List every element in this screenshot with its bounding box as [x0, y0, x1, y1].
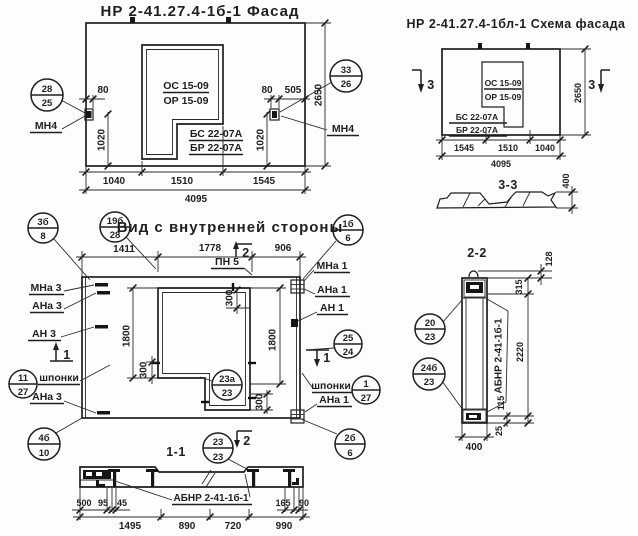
- anchor-label: МН4: [35, 120, 57, 132]
- dim-1545: 1545: [253, 176, 276, 187]
- section-2-2-mark-callout: АБНР 2-41-1б-1: [487, 299, 508, 412]
- dim-505: 505: [285, 85, 302, 96]
- inner-view-title: Вид с внутренней стороны: [117, 219, 344, 236]
- section-1-1-label: 1-1: [166, 445, 186, 459]
- section-2-2-label: 2-2: [467, 246, 487, 260]
- dim-2220: 2220: [515, 342, 525, 362]
- ana3-bottom-label: АНа 3: [32, 391, 62, 403]
- callout-bottom: 23: [222, 388, 233, 399]
- callout-bottom: 26: [341, 79, 352, 90]
- dim-115: 115: [496, 396, 506, 411]
- facade-anchor-label-left: МН4: [30, 116, 85, 133]
- dim-300-top-right: 300: [225, 289, 236, 306]
- section-1-1-mark: АБНР 2-41-1б-1: [115, 474, 252, 505]
- schema-dimensions: 2650 1545 1510 1040 4095: [436, 46, 591, 169]
- callout-bottom: 27: [361, 393, 372, 404]
- section-2-marker: 2: [243, 434, 250, 448]
- dim-1020-left: 1020: [97, 128, 108, 151]
- section-1-1-linework: [80, 467, 303, 487]
- section-1-1-callout: 23 23: [203, 433, 247, 469]
- dim-720: 720: [225, 521, 242, 532]
- facade-panel-mark: БС 22-07А: [190, 128, 243, 140]
- dim-990: 990: [276, 521, 293, 532]
- callout-top: 11: [18, 373, 29, 384]
- schema-view: НР 2-41.27.4-1бл-1 Схема фасада ОС 15-09…: [406, 17, 626, 169]
- section-3-marker: 3: [588, 78, 595, 92]
- inner-callout-2b6: 2б 6: [301, 419, 365, 459]
- dim-1411: 1411: [113, 244, 135, 255]
- dim-80-right: 80: [261, 85, 273, 96]
- section-2-2-linework: [462, 271, 487, 423]
- ana1-bottom-label: АНа 1: [319, 394, 349, 406]
- section-3-3-profile: [437, 192, 556, 208]
- callout-bottom: 25: [42, 98, 53, 109]
- shponki-left-label: шпонки: [39, 372, 79, 384]
- dim-2650-schema: 2650: [573, 83, 583, 103]
- mna3-label: МНа 3: [31, 282, 62, 294]
- callout-bottom: 23: [424, 377, 435, 388]
- facade-window-mark-2: ОР 15-09: [164, 95, 209, 107]
- dim-1020-right: 1020: [256, 128, 267, 151]
- an3-label: АН 3: [32, 328, 56, 340]
- schema-panel-mark: БС 22-07А: [456, 112, 498, 122]
- dim-1510: 1510: [171, 176, 194, 187]
- schema-section-marker-left: 3: [412, 70, 435, 93]
- facade-window-mark: ОС 15-09: [163, 80, 209, 92]
- inner-callout-23a23: 23а 23: [200, 370, 242, 400]
- dim-45: 45: [117, 498, 127, 508]
- callout-bottom: 28: [110, 230, 121, 241]
- pn5-label: ПН 5: [215, 256, 239, 268]
- section-3-3-dimension: 400: [556, 173, 578, 214]
- callout-bottom: 6: [347, 448, 352, 459]
- callout-top: 33: [341, 65, 352, 76]
- callout-top: 4б: [38, 433, 49, 444]
- ana1-top-label: АНа 1: [317, 284, 347, 296]
- section-1-marker: 1: [63, 348, 70, 362]
- dim-25: 25: [494, 426, 504, 436]
- dim-1040: 1040: [103, 176, 126, 187]
- dim-1495: 1495: [119, 521, 142, 532]
- section-2-2-callout-lower: 24б 23: [413, 358, 463, 410]
- dim-95: 95: [98, 498, 108, 508]
- dim-315: 315: [514, 279, 524, 294]
- section-3-3: 3-3 400: [437, 173, 578, 214]
- callout-top: 1: [363, 379, 369, 390]
- dim-165: 165: [275, 498, 290, 508]
- inner-callout-3b8: 3б 8: [28, 213, 90, 280]
- callout-bottom: 8: [40, 231, 45, 242]
- dim-80-left: 80: [97, 85, 109, 96]
- section-3-3-label: 3-3: [498, 178, 518, 192]
- inner-marker-1-left: 1: [50, 342, 73, 362]
- section-2-2-panel-mark: АБНР 2-41-1б-1: [493, 318, 505, 393]
- dim-1545-schema: 1545: [454, 143, 474, 153]
- section-3-marker: 3: [427, 78, 434, 92]
- callout-bottom: 27: [18, 387, 29, 398]
- drawing-sheet: НР 2-41.27.4-1б-1 Фасад ОС 15-09 ОР 15-0…: [0, 0, 638, 536]
- callout-top: 25: [343, 333, 354, 344]
- schema-section-marker-right: 3: [588, 70, 610, 93]
- inner-marker-1-right: 1: [306, 350, 331, 367]
- inner-view: Вид с внутренней стороны 3б 8 19б 28 1б …: [9, 212, 380, 460]
- callout-bottom: 23: [425, 332, 436, 343]
- dim-1800-left: 1800: [122, 324, 133, 347]
- callout-top: 23: [213, 437, 224, 448]
- callout-bottom: 6: [345, 233, 350, 244]
- schema-window-mark-2: ОР 15-09: [485, 92, 522, 102]
- dim-890: 890: [179, 521, 196, 532]
- callout-top: 28: [42, 84, 53, 95]
- schema-panel-mark-2: БР 22-07А: [456, 125, 498, 135]
- inner-callout-1127: 11 27: [9, 370, 37, 398]
- schema-title: НР 2-41.27.4-1бл-1 Схема фасада: [406, 17, 626, 31]
- facade-panel-mark-2: БР 22-07А: [190, 142, 242, 154]
- inner-top-dimensions: 1411 1778 906: [76, 243, 306, 277]
- mna1-label: МНа 1: [317, 260, 348, 272]
- callout-top: 3б: [37, 217, 48, 228]
- dim-500: 500: [76, 498, 91, 508]
- dim-4095-schema: 4095: [491, 159, 511, 169]
- dim-1510-schema: 1510: [498, 143, 518, 153]
- inner-callout-127: 1 27: [352, 376, 380, 404]
- shponki-right-label: шпонки: [311, 380, 351, 392]
- dim-906: 906: [275, 243, 292, 254]
- section-1-marker: 1: [323, 351, 330, 365]
- section-2-marker: 2: [242, 246, 249, 260]
- callout-bottom: 23: [213, 452, 224, 463]
- facade-dimensions: 80 80 505 1020 1020 2650 1040 1510 1545 …: [79, 20, 331, 205]
- anchor-label: МН4: [332, 123, 354, 135]
- inner-callout-4b10: 4б 10: [28, 418, 82, 460]
- panel-drawing-svg: НР 2-41.27.4-1б-1 Фасад ОС 15-09 ОР 15-0…: [0, 0, 638, 536]
- facade-anchor-label-right: МН4: [281, 116, 359, 136]
- callout-top: 2б: [344, 433, 355, 444]
- dim-300-bottom-right: 300: [255, 393, 266, 410]
- callout-top: 24б: [421, 363, 438, 374]
- facade-opening-marks: ОС 15-09 ОР 15-09 БС 22-07А БР 22-07А: [163, 80, 243, 155]
- dim-400-thickness: 400: [561, 173, 571, 188]
- dim-4095-facade: 4095: [185, 194, 208, 205]
- ana3-top-label: АНа 3: [32, 300, 62, 312]
- inner-marker-2-bottom: 2: [234, 431, 252, 448]
- callout-top: 20: [425, 318, 436, 329]
- callout-top: 1б: [342, 219, 353, 230]
- dim-300-left: 300: [139, 361, 150, 378]
- callout-bottom: 10: [39, 448, 50, 459]
- dim-1800-right: 1800: [268, 328, 279, 351]
- inner-dimensions: 1800 300 1800 300 300: [122, 285, 287, 414]
- dim-400-width: 400: [466, 442, 483, 453]
- dim-2650-facade: 2650: [314, 83, 325, 106]
- dim-1040-schema: 1040: [535, 143, 555, 153]
- schema-window-mark: ОС 15-09: [485, 78, 522, 88]
- an1-label: АН 1: [320, 302, 344, 314]
- dim-1778: 1778: [199, 243, 222, 254]
- section-2-2: 2-2 АБНР 2-41-1б-1 20 23 24б 23: [413, 246, 554, 453]
- callout-top: 19б: [107, 216, 124, 227]
- section-2-2-callout-upper: 20 23: [415, 300, 462, 344]
- section-1-1-panel-mark: АБНР 2-41-1б-1: [173, 492, 248, 504]
- dim-128: 128: [544, 251, 554, 266]
- callout-bottom: 24: [343, 347, 354, 358]
- inner-callout-2524: 25 24: [306, 330, 362, 358]
- dim-90: 90: [299, 498, 309, 508]
- section-1-1: 1-1 23 23 АБНР 2-41-1б-1 500 95: [72, 433, 310, 532]
- facade-callout-left: 28 25: [31, 79, 85, 113]
- callout-top: 23а: [219, 374, 236, 385]
- facade-view: НР 2-41.27.4-1б-1 Фасад ОС 15-09 ОР 15-0…: [30, 3, 362, 205]
